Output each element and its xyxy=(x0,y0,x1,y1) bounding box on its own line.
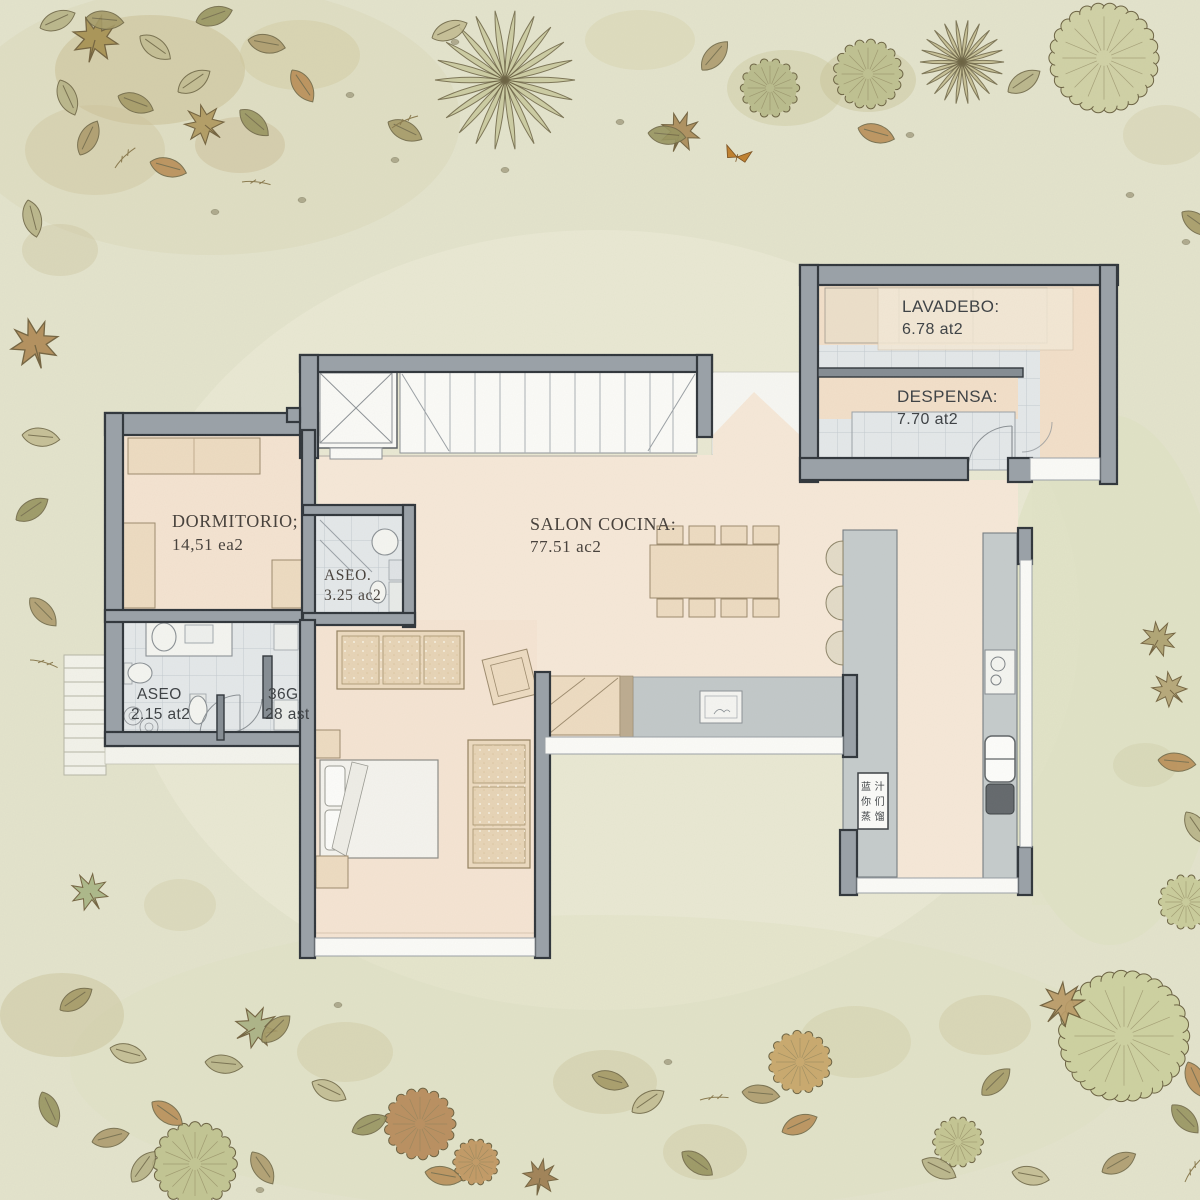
paper-texture xyxy=(0,0,1200,1200)
floor-plan-canvas: LAVADEBO: 6.78 at2 DESPENSA: 7.70 at2 DO… xyxy=(0,0,1200,1200)
floor-plan-scene: LAVADEBO: 6.78 at2 DESPENSA: 7.70 at2 DO… xyxy=(0,0,1200,1200)
